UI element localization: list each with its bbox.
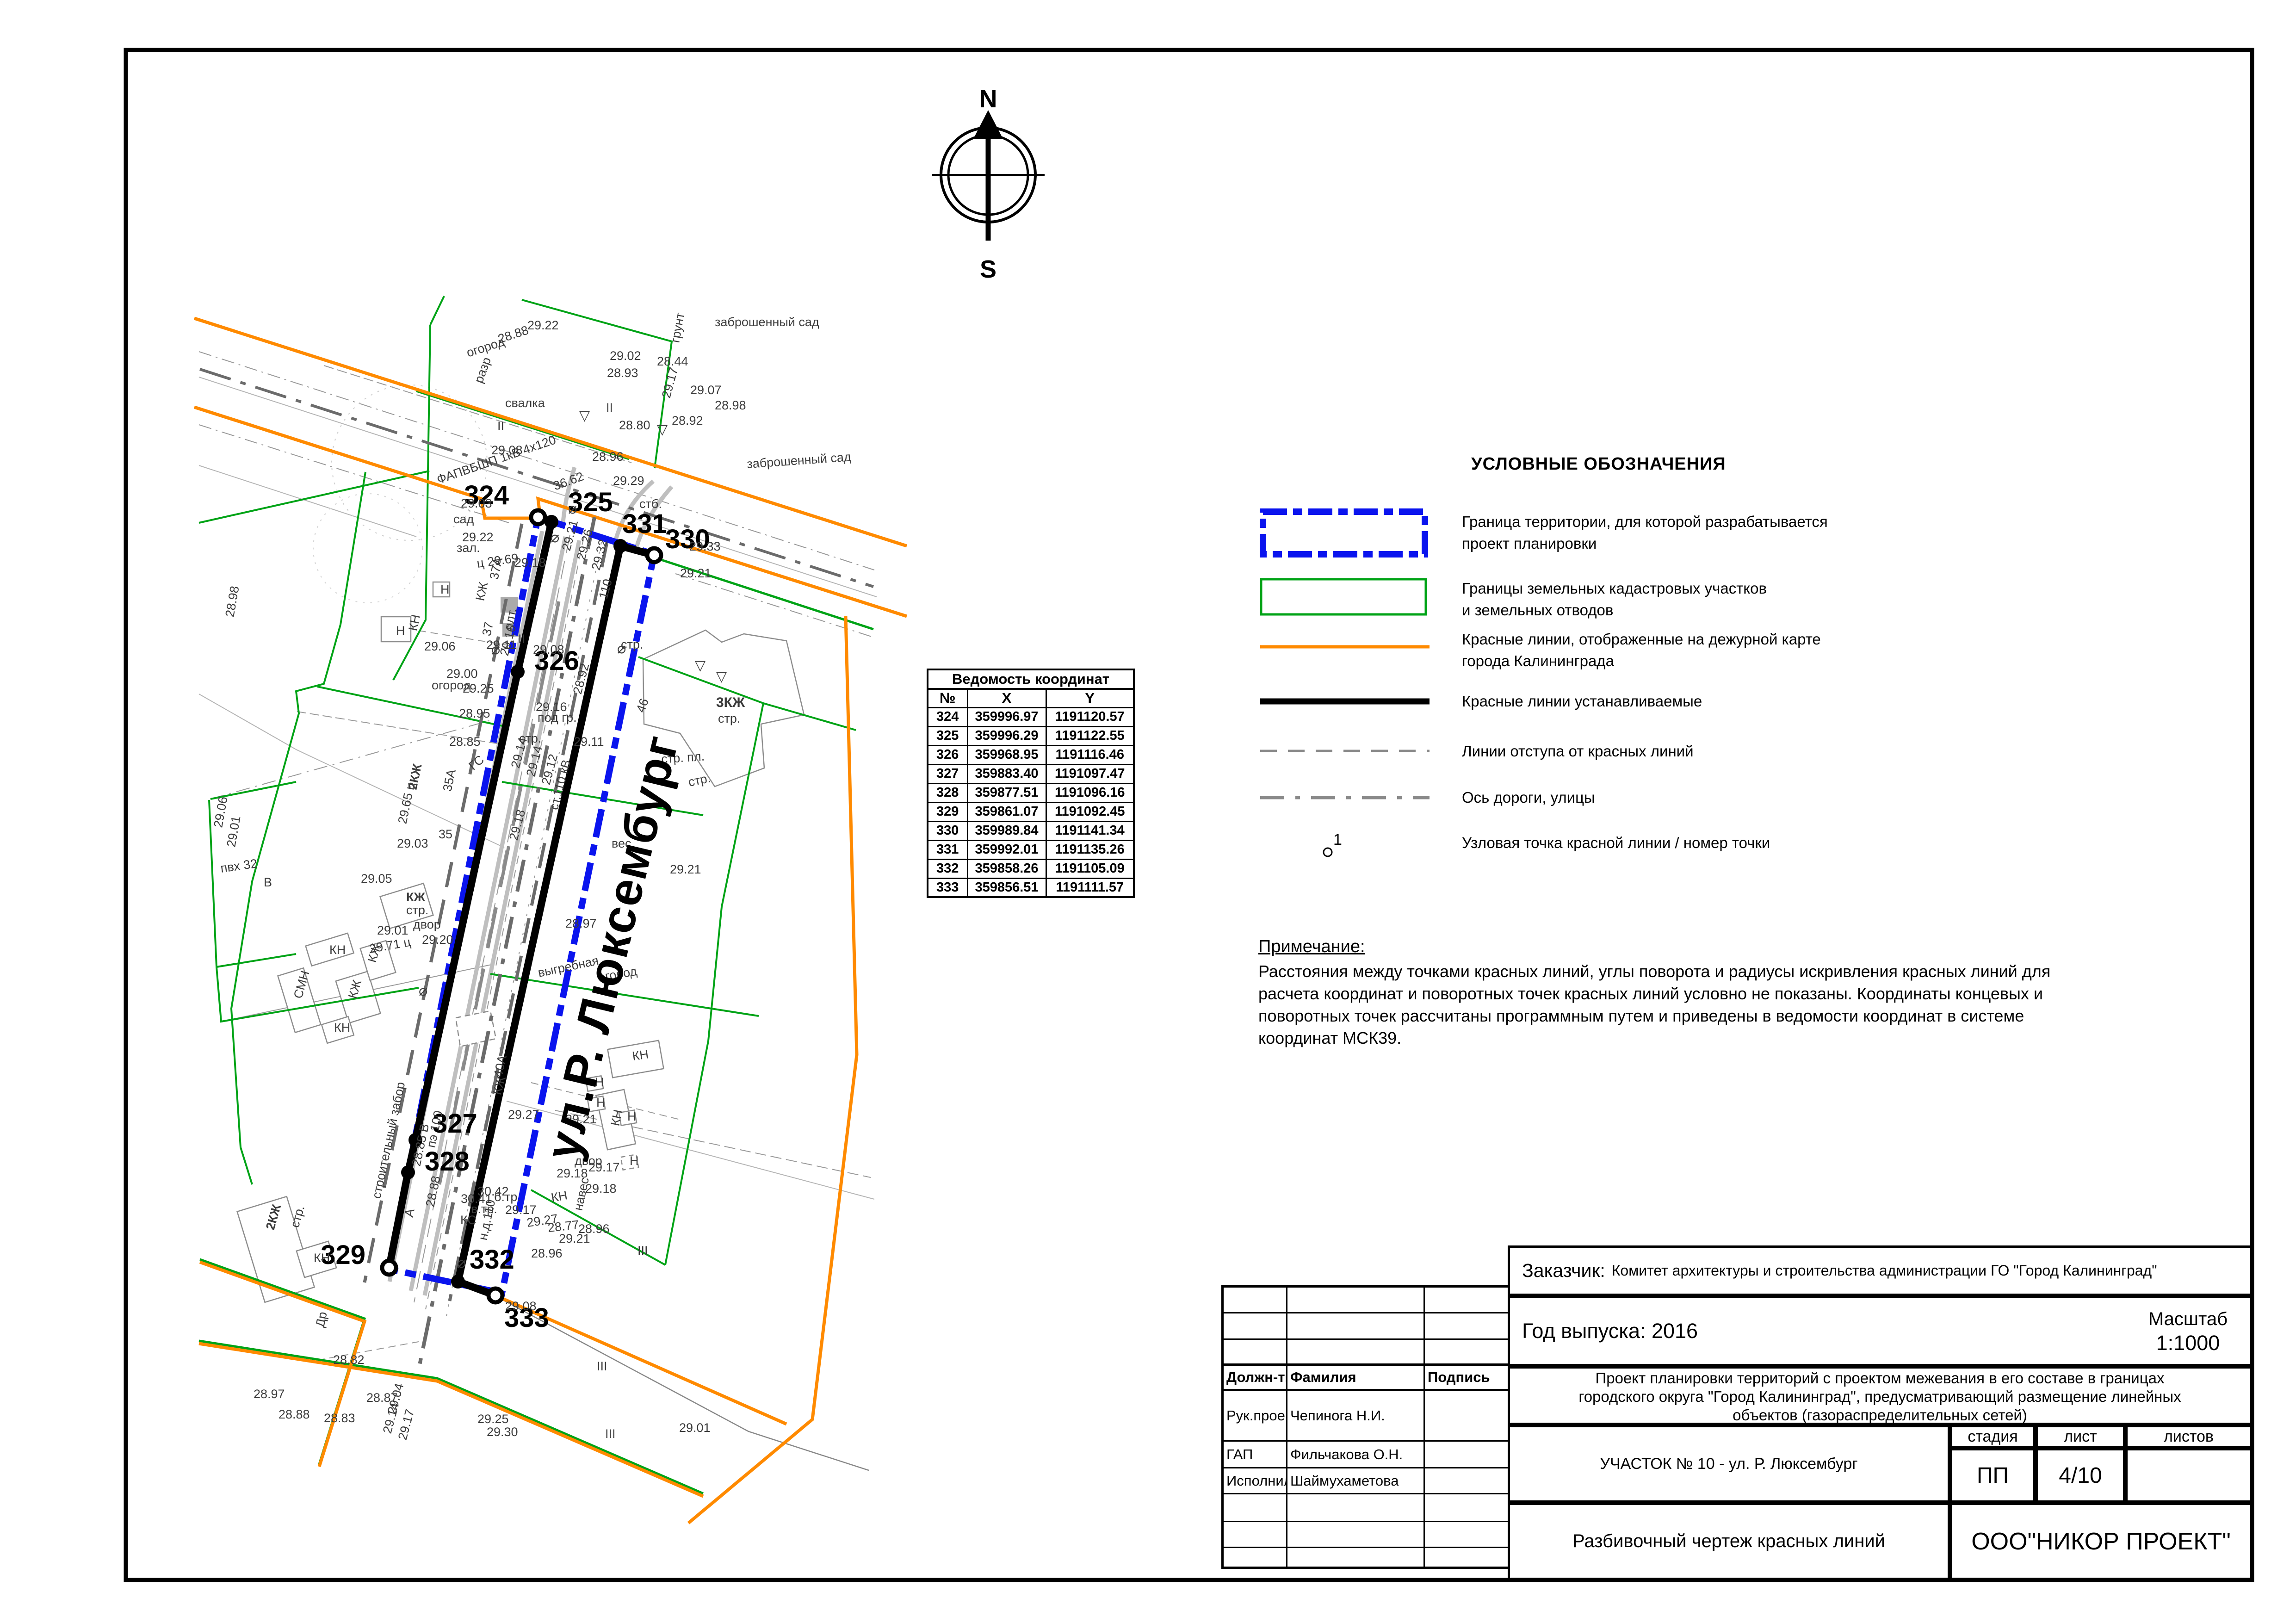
map-label: ▽ <box>657 422 668 437</box>
coordinate-table: Ведомость координат № X Y 324359996.9711… <box>927 669 1135 898</box>
map-label: Н <box>627 1109 637 1123</box>
red-line-node-331 <box>613 539 627 553</box>
map-label: ▽ <box>695 658 706 673</box>
map-label: 35 <box>439 827 452 841</box>
map-label: 29.29 <box>613 474 644 488</box>
map-label: ▽ <box>716 669 727 684</box>
map-label: 28.98 <box>715 398 746 412</box>
coord-col-n: № <box>928 689 967 707</box>
map-label: ⌀ <box>457 1254 466 1271</box>
map-label: 35А <box>440 768 458 793</box>
map-label: КЖ <box>406 890 425 904</box>
table-row: 333359856.511191111.57 <box>928 878 1134 897</box>
map-label: ⌀ <box>419 982 427 999</box>
north-arrow-icon <box>973 110 1003 139</box>
map-label: 29.06 <box>211 795 230 829</box>
map-label: 29.20 <box>422 933 453 947</box>
map-label: В <box>264 875 272 889</box>
coord-col-x: X <box>967 689 1046 707</box>
map-label: КН <box>334 1021 350 1035</box>
signature-cell <box>1424 1441 1509 1468</box>
red-line-node-324 <box>531 510 545 524</box>
role-header: Должн-ть <box>1223 1365 1287 1390</box>
stage-value-cell: ПП <box>1950 1448 2036 1503</box>
map-label: стр. <box>718 712 740 725</box>
map-label: III <box>637 1244 648 1258</box>
map-label: Др <box>313 1310 330 1328</box>
map-label: ⌀ <box>491 641 500 657</box>
red-line-node-333 <box>489 1288 502 1302</box>
map-label: ▽ <box>579 408 590 423</box>
scale-label: Масштаб <box>2148 1307 2228 1331</box>
customer-cell: Заказчик: Комитет архитектуры и строител… <box>1508 1245 2252 1296</box>
table-row: 324359996.971191120.57 <box>928 707 1134 726</box>
legend-label: Узловая точка красной линии / номер точк… <box>1462 832 2119 854</box>
red-line-node-329 <box>382 1261 396 1275</box>
year-value: Год выпуска: 2016 <box>1510 1319 2148 1343</box>
map-label: 2КЖ <box>406 762 425 791</box>
red-line-node-330 <box>647 548 661 562</box>
map-label: Н <box>630 1154 639 1168</box>
map-label: 29.30 <box>487 1425 518 1439</box>
map-label: 28.82 <box>333 1353 365 1367</box>
map-label: стр. <box>406 903 428 917</box>
table-row: 332359858.261191105.09 <box>928 859 1134 878</box>
table-row: 329359861.071191092.45 <box>928 802 1134 821</box>
map-label: КС <box>460 1213 477 1227</box>
map-label: 29.08 <box>505 1299 537 1313</box>
legend-label: Ось дороги, улицы <box>1462 787 2119 808</box>
map-label: 28.88 <box>278 1407 310 1421</box>
map-label: 29.02 <box>610 349 641 363</box>
map-label: III <box>597 1359 607 1373</box>
map-label: ⌀ <box>568 500 577 517</box>
year-scale-cell: Год выпуска: 2016 Масштаб 1:1000 <box>1508 1296 2252 1366</box>
note-title: Примечание: <box>1258 935 1365 958</box>
legend-label: Красные линии устанавливаемые <box>1462 690 2119 712</box>
map-label: 28.93 <box>607 366 638 380</box>
map-label: строительный забор <box>370 1081 408 1200</box>
sign-header: Подпись <box>1424 1365 1509 1390</box>
map-label: 28.97 <box>254 1387 285 1401</box>
node-number-label: 328 <box>425 1146 470 1177</box>
signature-cell <box>1424 1468 1509 1494</box>
map-label: 29.01 <box>679 1421 711 1435</box>
scale-value: 1:1000 <box>2148 1331 2228 1355</box>
map-label: 37 <box>480 621 496 638</box>
map-label: 29.27 <box>508 1108 539 1121</box>
sheet: { "colors":{"blue":"#0a14ee","green":"#0… <box>0 0 2296 1623</box>
map-label: заброшенный сад <box>715 315 819 329</box>
map-label: разр <box>471 355 494 385</box>
map-label: 29.17 <box>588 1160 620 1174</box>
coord-table-body: 324359996.971191120.57325359996.29119112… <box>928 707 1134 897</box>
svg-text:1: 1 <box>1333 831 1342 849</box>
map-label: 28.44 <box>657 354 688 368</box>
map-label: 29.25 <box>463 681 494 695</box>
legend-title: УСЛОВНЫЕ ОБОЗНАЧЕНИЯ <box>1471 454 1795 474</box>
map-label: грунт <box>668 311 687 344</box>
map-label: КЖ <box>490 1074 508 1096</box>
legend-symbol-territory <box>1259 508 1431 561</box>
signatures-table: Должн-ть Фамилия Подпись Рук.проектЧепин… <box>1221 1285 1510 1569</box>
sheet-label-cell: лист <box>2036 1425 2125 1448</box>
map-label: 28.80 <box>619 418 650 432</box>
map-label: 29.21 <box>680 566 712 580</box>
map-label: III <box>605 1427 616 1441</box>
note: Примечание: Расстояния между точками кра… <box>1258 935 2123 1049</box>
legend-symbol-setback <box>1259 747 1431 757</box>
table-row: 331359992.011191135.26 <box>928 840 1134 859</box>
name-header: Фамилия <box>1287 1365 1424 1390</box>
map-label: двор <box>413 917 441 931</box>
node-number-label: 331 <box>622 509 667 539</box>
map-area: 324325326327328329330331332333 заброшенн… <box>194 296 907 1523</box>
map-label: сад <box>453 512 474 526</box>
map-label: 28.85 <box>449 735 481 749</box>
map-label: заброшенный сад <box>746 450 851 471</box>
legend-label: Границы земельных кадастровых участкови … <box>1462 577 2119 621</box>
map-label: 29.33 <box>689 539 721 553</box>
compass-south: S <box>980 255 996 283</box>
stage-label-cell: стадия <box>1950 1425 2036 1448</box>
map-label: 29.07 <box>690 383 722 397</box>
red-line-node-325 <box>545 515 558 529</box>
legend-label: Линии отступа от красных линий <box>1462 740 2119 762</box>
red-line-node-326 <box>511 665 525 679</box>
legend-label: Граница территории, для которой разрабат… <box>1462 511 2119 554</box>
red-line-node-328 <box>401 1165 415 1179</box>
map-label: КН <box>329 943 346 957</box>
company-cell: ООО"НИКОР ПРОЕКТ" <box>1950 1503 2252 1580</box>
map-label: 29.22 <box>462 530 494 544</box>
table-row: 330359989.841191141.34 <box>928 821 1134 840</box>
map-label: 29.22 <box>527 318 559 332</box>
map-label: 28.83 <box>324 1411 355 1425</box>
map-label: 29.17 <box>659 366 681 400</box>
map-label: 29.21 <box>559 1232 590 1245</box>
map-label: 29.18 <box>514 556 546 570</box>
map-label: 28.95 <box>459 706 490 720</box>
map-label: под гр. <box>538 711 577 725</box>
customer-label: Заказчик: <box>1522 1260 1605 1282</box>
map-label: 28.98 <box>223 585 241 618</box>
table-row: 327359883.401191097.47 <box>928 764 1134 783</box>
map-label: II <box>518 632 525 646</box>
compass <box>932 110 1045 241</box>
red-line-node-332 <box>451 1275 465 1288</box>
sheet-value-cell: 4/10 <box>2036 1448 2125 1503</box>
map-label: стр. <box>687 771 712 789</box>
map-label: огород <box>465 335 507 360</box>
map-label: 29.11 <box>486 638 517 652</box>
sheets-label-cell: листов <box>2125 1425 2252 1448</box>
legend-label: Красные линии, отображенные на дежурной … <box>1462 628 2119 672</box>
map-label: КН <box>631 1047 650 1063</box>
map-label: пвх 32 <box>220 856 258 875</box>
map-label: 28.96 <box>592 450 624 464</box>
compass-north: N <box>979 85 997 113</box>
map-label: 28.88 <box>423 1175 443 1208</box>
coord-table-title: Ведомость координат <box>928 669 1134 689</box>
table-row: 325359996.291191122.55 <box>928 726 1134 745</box>
map-label: II <box>606 401 613 415</box>
map-label: 29.11 <box>574 735 604 749</box>
map-label: 29.03 <box>461 496 492 510</box>
coord-col-y: Y <box>1046 689 1134 707</box>
map-label: КН <box>314 1251 330 1265</box>
project-title-cell: Проект планировки территорий с проектом … <box>1508 1366 2252 1425</box>
map-label: 29.25 <box>477 1412 509 1426</box>
map-label: стр. <box>519 731 541 745</box>
map-label: 3КЖ <box>716 695 745 710</box>
map-label: 29.08 <box>533 643 564 657</box>
map-label: 29.17 <box>505 1203 537 1217</box>
signature-cell <box>1424 1390 1509 1441</box>
map-label: ⌀ <box>617 640 626 657</box>
map-label: II <box>497 419 504 433</box>
map-label: 29.21 <box>670 862 701 876</box>
map-label: Н <box>440 582 450 596</box>
map-label: 29.01 <box>224 815 243 848</box>
map-label: 29.01 <box>377 923 408 937</box>
map-label: ⌀ <box>551 529 559 545</box>
legend-symbol-road-axis <box>1259 793 1431 804</box>
map-label: КЖ <box>473 581 491 602</box>
legend-symbol-cadastral <box>1259 577 1431 619</box>
map-label: 29.05 <box>361 872 392 886</box>
site-cell: УЧАСТОК № 10 - ул. Р. Люксембург <box>1508 1425 1950 1503</box>
table-row: 326359968.951191116.46 <box>928 745 1134 764</box>
table-row: 328359877.511191096.16 <box>928 783 1134 802</box>
map-label: 28.92 <box>672 414 703 427</box>
map-label: КН <box>550 1188 569 1205</box>
map-label: Н <box>396 624 405 638</box>
map-label: 29.06 <box>424 639 456 653</box>
map-label: 29.03 <box>397 836 428 850</box>
map-label: стб. <box>639 497 662 511</box>
map-label: б.тр. <box>494 1190 521 1204</box>
sheets-value-cell <box>2125 1448 2252 1503</box>
map-label: свалка <box>505 396 545 410</box>
legend-symbol-duty-redline <box>1259 642 1431 654</box>
customer-value: Комитет архитектуры и строительства адми… <box>1612 1262 2157 1279</box>
map-label: 28.96 <box>531 1246 563 1260</box>
drawing-title-cell: Разбивочный чертеж красных линий <box>1508 1503 1950 1580</box>
node-number-label: 332 <box>470 1245 514 1275</box>
legend-symbol-redline <box>1259 696 1431 709</box>
